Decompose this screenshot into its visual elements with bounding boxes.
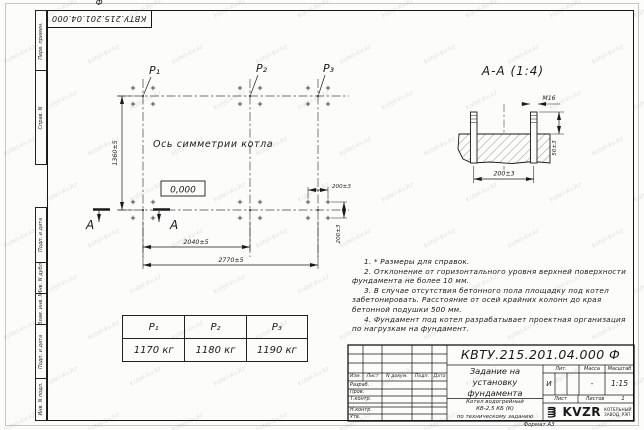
thread-size-label: М16: [542, 95, 555, 102]
drawing-title: Задание на установку фундамента: [447, 366, 543, 398]
format-label: Формат А3: [479, 422, 599, 428]
load-point-label-2: P₂: [256, 62, 268, 75]
note-1: 1. * Размеры для справок.: [352, 257, 632, 267]
row-label-tcontrol: Т.контр.: [348, 396, 382, 403]
row-label-ncontrol: Н.контр.: [348, 407, 382, 414]
dim-text-200-section: 200±3: [493, 171, 514, 178]
note-4: 4. Фундамент под котел разрабатывает про…: [352, 315, 632, 334]
margin-label: Инв. N дубл.: [38, 262, 44, 295]
margin-cell: Подп. и дата: [36, 325, 46, 379]
centerlines: [117, 79, 349, 257]
margin-strip-top: Перв. примен. Справ. N: [35, 10, 47, 165]
doc-number-stamp: КВТУ.215.201.04.000 Ф: [47, 10, 152, 28]
lit-value: И: [543, 373, 555, 395]
load-table-header: P₂: [184, 316, 245, 338]
drawing-title-line: Задание на: [447, 366, 543, 376]
col-header-izm: Изм.: [348, 373, 363, 381]
col-header-sign: Подп.: [412, 373, 432, 381]
kvzr-coil-icon: [546, 406, 559, 419]
leader-lines: [144, 75, 325, 95]
anchor-bolt-left: [471, 112, 478, 163]
plan-view: P₁ P₂ P₃ Ось симметрии котла 0,000 А А 1…: [85, 62, 351, 269]
margin-cell: Перв. примен.: [36, 11, 46, 71]
load-table-value: 1190 кг: [246, 338, 307, 361]
title-block-doc-number: КВТУ.215.201.04.000 Ф: [447, 345, 634, 365]
margin-cell: Инв. N подл.: [36, 379, 46, 418]
sheets-value: 1: [612, 395, 634, 403]
row-label-approved: Утв.: [348, 414, 382, 421]
sheets-label: Листов: [578, 395, 612, 403]
product-name-line: Котел водогрейный: [447, 399, 543, 405]
margin-label: Подп. и дата: [38, 334, 44, 368]
row-label-checker: Пров.: [348, 389, 382, 396]
col-header-doc: N докум.: [382, 373, 412, 381]
title-block: КВТУ.215.201.04.000 Ф Задание на установ…: [348, 345, 634, 421]
col-header-list: Лист: [363, 373, 382, 381]
margin-cell: Инв. N дубл.: [36, 263, 46, 294]
notes-block: 1. * Размеры для справок. 2. Отклонение …: [352, 257, 632, 334]
drawing-sheet: kotel-kv.kzkotel-kv.kzkotel-kv.kzkotel-k…: [0, 0, 644, 430]
logo-text: KVZR: [562, 405, 601, 419]
col-header-date: Дата: [432, 373, 447, 381]
product-name-line: КВ-2,5 КБ (К): [447, 406, 543, 412]
anchor-bolt-right: [531, 112, 538, 163]
mass-value: -: [579, 373, 605, 395]
dim-text-200h: 200±3: [332, 184, 351, 190]
load-table-value: 1180 кг: [184, 338, 245, 361]
dim-text-1360: 1360±5: [112, 140, 119, 165]
load-table-value: 1170 кг: [123, 338, 184, 361]
sheet-label: Лист: [543, 395, 578, 403]
margin-label: Подп. и дата: [38, 218, 44, 252]
scale-header: Масштаб: [605, 365, 634, 373]
note-3: 3. В случае отсутствия бетонного пола пл…: [352, 286, 632, 315]
margin-cell: Взам. инв. N: [36, 294, 46, 325]
load-table: P₁ P₂ P₃ 1170 кг 1180 кг 1190 кг: [122, 315, 308, 362]
margin-label: Инв. N подл.: [38, 382, 44, 415]
logo-caption: КОТЕЛЬНЫЙ ЗАВОД, РЭП: [604, 407, 631, 417]
dim-text-2770: 2770±5: [218, 257, 243, 264]
margin-label: Справ. N: [38, 106, 44, 129]
load-table-header: P₁: [123, 316, 184, 338]
row-label-developer: Разраб.: [348, 382, 382, 389]
elevation-value: 0,000: [170, 185, 196, 195]
margin-cell: Подп. и дата: [36, 208, 46, 263]
logo-caption-line: ЗАВОД, РЭП: [604, 412, 631, 417]
margin-label: Перв. примен.: [38, 22, 44, 60]
section-letter-left: А: [85, 218, 94, 232]
load-point-label-3: P₃: [323, 62, 335, 75]
extension-lines: [118, 96, 347, 269]
section-title: А-А (1:4): [481, 64, 544, 78]
section-letter-right: А: [169, 218, 178, 232]
scale-value: 1:15: [605, 373, 634, 395]
mass-header: Масса: [579, 365, 605, 373]
margin-cell: Справ. N: [36, 71, 46, 164]
dim-text-2040: 2040±5: [183, 239, 208, 246]
symmetry-axis-label: Ось симметрии котла: [153, 139, 273, 150]
dim-text-50: 50±3: [552, 140, 558, 156]
drawing-title-line: установку: [447, 377, 543, 387]
dim-text-200v: 200±3: [336, 224, 342, 243]
load-table-header: P₃: [246, 316, 307, 338]
product-name-line: по техническому заданию: [447, 414, 543, 420]
load-point-label-1: P₁: [149, 64, 160, 77]
doc-number-stamp-text: КВТУ.215.201.04.000 Ф: [47, 10, 151, 27]
margin-label: Взам. инв. N: [38, 293, 44, 326]
drawing-title-line: фундамента: [447, 388, 543, 398]
section-view: А-А (1:4) М16 50±3 200±3: [458, 64, 564, 183]
product-name: Котел водогрейный КВ-2,5 КБ (К) по техни…: [447, 399, 543, 421]
note-2: 2. Отклонение от горизонтального уровня …: [352, 267, 632, 286]
lit-header: Лит.: [543, 365, 579, 373]
margin-strip-bottom: Подп. и дата Инв. N дубл. Взам. инв. N П…: [35, 207, 47, 421]
company-logo: KVZR КОТЕЛЬНЫЙ ЗАВОД, РЭП: [544, 403, 634, 421]
